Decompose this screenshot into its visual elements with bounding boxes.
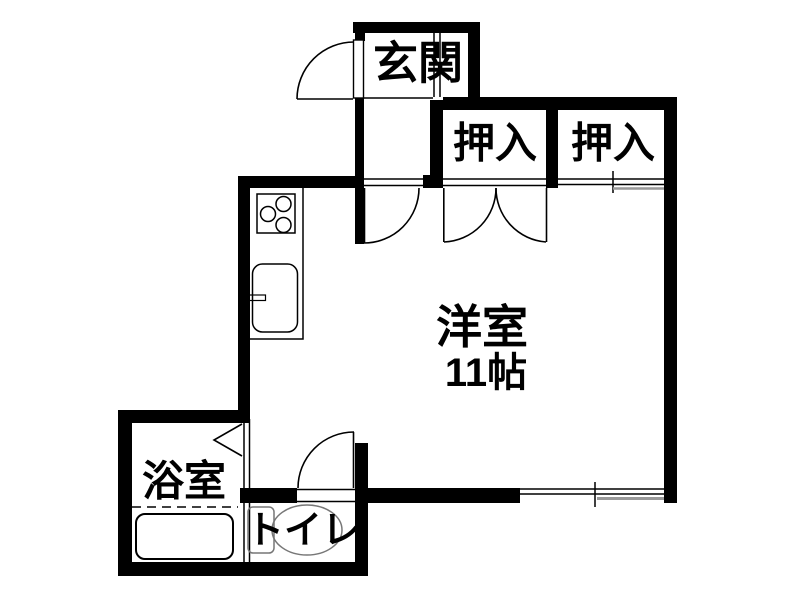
wall-bottom-mid-segment — [368, 488, 520, 503]
floorplan: 玄関 押入 押入 洋室 11帖 浴室 トイレ — [0, 0, 800, 600]
wall-hall-door-stub — [423, 175, 443, 188]
bathroom-label: 浴室 — [142, 458, 226, 505]
closet-right-label: 押入 — [571, 120, 655, 167]
wall-entrance-left-upper — [355, 22, 365, 41]
wall-kitchen-top — [238, 176, 364, 188]
wall-bathroom-top — [118, 410, 250, 423]
wall-right-outer — [664, 97, 677, 503]
wall-closets-top — [443, 97, 677, 110]
closet-left-label: 押入 — [453, 120, 537, 167]
genkan-label: 玄関 — [373, 38, 463, 89]
wall-bottom-left-segment — [240, 488, 297, 503]
wall-entrance-top — [353, 22, 480, 33]
wall-closet-left-side — [430, 100, 443, 188]
main-room-label: 洋室 — [436, 301, 528, 353]
wall-hall-left — [355, 97, 364, 244]
toilet-label: トイレ — [246, 510, 360, 552]
wall-entrance-right — [468, 22, 480, 98]
wall-closet-divider — [546, 108, 558, 188]
main-room-size-label: 11帖 — [445, 351, 527, 395]
entrance-door-leaf — [354, 40, 364, 98]
wall-bathroom-left — [118, 410, 132, 576]
wall-bottom-outer — [118, 562, 368, 576]
